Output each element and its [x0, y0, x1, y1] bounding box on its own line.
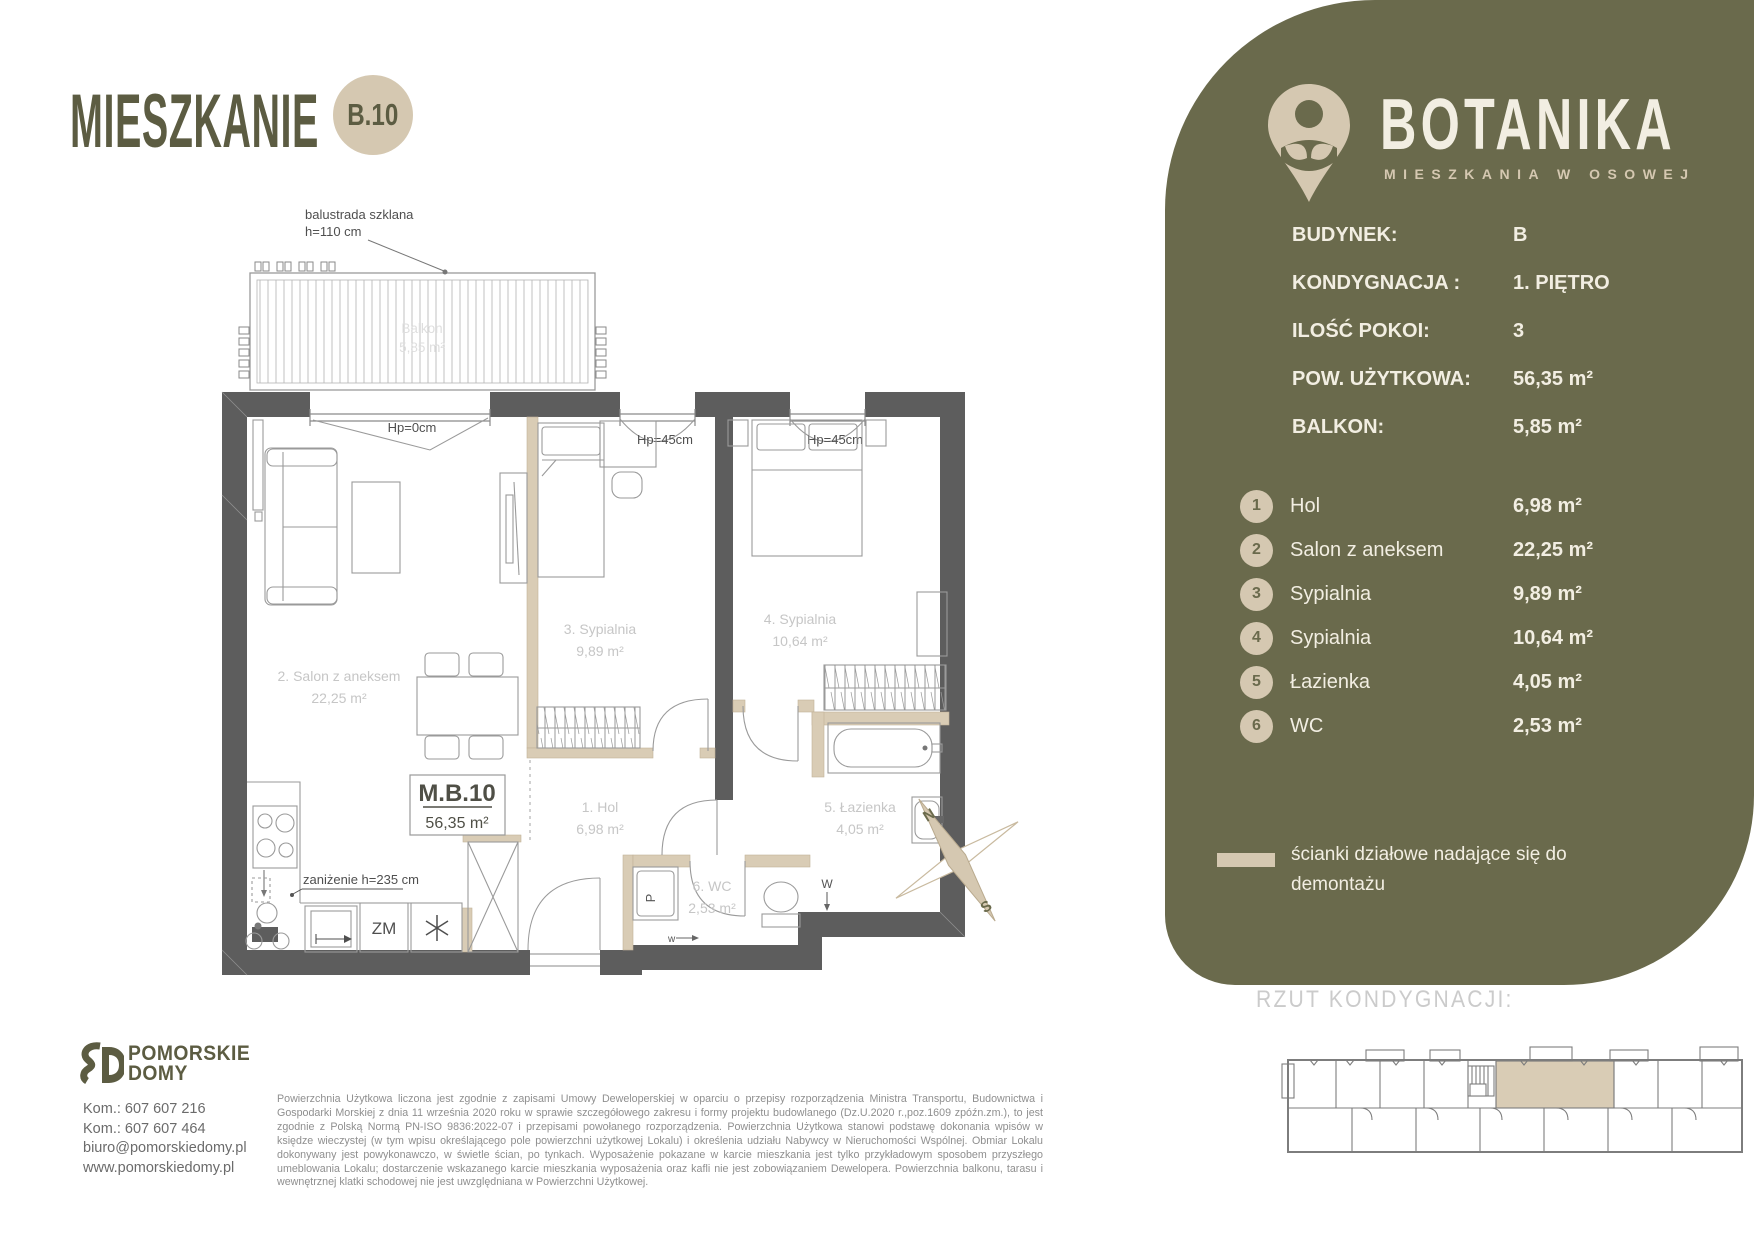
spec-label: ILOŚĆ POKOI:	[1292, 320, 1430, 343]
spec-label: BALKON:	[1292, 416, 1384, 439]
sill-height-label: Hp=0cm	[388, 420, 437, 435]
room-name: WC	[1290, 715, 1323, 738]
list-item: 2 Salon z aneksem 22,25 m²	[1240, 528, 1700, 572]
room-area-label: 2,53 m²	[688, 900, 736, 916]
room-number-badge: 6	[1240, 710, 1273, 743]
single-bed	[538, 423, 604, 577]
pillow	[542, 427, 600, 455]
hall: M.B.10 56,35 m² 1. Hol 6,98 m²	[410, 775, 624, 977]
room-number-badge: 4	[1240, 622, 1273, 655]
brand-tagline: MIESZKANIA W OSOWEJ	[1384, 166, 1696, 182]
spec-value: 1. PIĘTRO	[1513, 272, 1610, 295]
room-number-badge: 3	[1240, 578, 1273, 611]
room-area: 2,53 m²	[1513, 715, 1582, 738]
room-label-bedroom4: 4. Sypialnia	[764, 611, 837, 627]
bedroom-4	[728, 420, 947, 761]
spec-row-floor: KONDYGNACJA : 1. PIĘTRO	[1292, 259, 1712, 307]
toilet-bowl	[764, 882, 798, 912]
phone-line: Kom.: 607 607 216	[83, 1100, 247, 1120]
email-line: biuro@pomorskiedomy.pl	[83, 1139, 247, 1159]
room-number-badge: 2	[1240, 534, 1273, 567]
dishwasher-label: ZM	[372, 919, 397, 938]
vent-label: W	[821, 877, 833, 891]
spec-row-balcony: BALKON: 5,85 m²	[1292, 403, 1712, 451]
map-pin-leaf-icon	[1268, 84, 1350, 202]
highlighted-unit	[1496, 1061, 1614, 1108]
leader-line	[368, 240, 444, 271]
room-label-wc: 6. WC	[693, 878, 732, 894]
coffee-table	[352, 482, 400, 573]
list-item: 6 WC 2,53 m²	[1240, 704, 1700, 748]
floor-overview-plan	[1280, 1040, 1750, 1167]
radiator	[253, 420, 263, 510]
room-name: Sypialnia	[1290, 627, 1371, 650]
sink	[257, 903, 277, 923]
balcony: Balkon 5,85 m² balustrada szklana h=110 …	[239, 207, 606, 390]
dining-table	[417, 677, 518, 735]
unit-area: 56,35 m²	[425, 815, 489, 832]
vent-label: w	[667, 934, 676, 945]
spec-value: 5,85 m²	[1513, 416, 1582, 439]
developer-name: POMORSKIE DOMY	[128, 1044, 250, 1084]
washer-label: P	[643, 894, 658, 903]
room-label-salon: 2. Salon z aneksem	[278, 668, 401, 684]
room-name: Sypialnia	[1290, 583, 1371, 606]
room-name: Salon z aneksem	[1290, 539, 1443, 562]
spec-row-building: BUDYNEK: B	[1292, 211, 1712, 259]
list-item: 3 Sypialnia 9,89 m²	[1240, 572, 1700, 616]
website-line: www.pomorskiedomy.pl	[83, 1159, 247, 1179]
list-item: 4 Sypialnia 10,64 m²	[1240, 616, 1700, 660]
developer-logo-icon	[78, 1042, 124, 1088]
room-area: 10,64 m²	[1513, 627, 1593, 650]
beige-wall-swatch	[1217, 853, 1275, 867]
developer-name-line2: DOMY	[128, 1064, 250, 1084]
nightstand	[866, 420, 886, 446]
spec-row-rooms: ILOŚĆ POKOI: 3	[1292, 307, 1712, 355]
unit-code: M.B.10	[418, 780, 495, 807]
chair	[469, 736, 503, 759]
room-area-label: 10,64 m²	[772, 633, 828, 649]
spec-row-usable-area: POW. UŻYTKOWA: 56,35 m²	[1292, 355, 1712, 403]
room-area: 22,25 m²	[1513, 539, 1593, 562]
room-area-label: 22,25 m²	[311, 690, 367, 706]
demountable-walls-legend: ścianki działowe nadające się do demonta…	[1217, 840, 1636, 900]
room-area-label: 6,98 m²	[576, 821, 624, 837]
spec-label: KONDYGNACJA :	[1292, 272, 1460, 295]
chair	[425, 653, 459, 676]
phone-line: Kom.: 607 607 464	[83, 1120, 247, 1140]
brand-name: BOTANIKA	[1380, 84, 1676, 166]
sill-height-label: Hp=45cm	[807, 432, 863, 447]
floor-overview-heading: RZUT KONDYGNACJI:	[1256, 986, 1514, 1014]
room-area: 6,98 m²	[1513, 495, 1582, 518]
toilet-tank	[762, 914, 800, 927]
room-name: Łazienka	[1290, 671, 1370, 694]
list-item: 1 Hol 6,98 m²	[1240, 484, 1700, 528]
balcony-area-label: 5,85 m²	[399, 340, 445, 355]
door-arc	[653, 699, 708, 751]
room-area-label: 9,89 m²	[576, 643, 624, 659]
leader-line	[293, 889, 403, 894]
spec-label: POW. UŻYTKOWA:	[1292, 368, 1471, 391]
apartment-floor-plan: Balkon 5,85 m² balustrada szklana h=110 …	[180, 170, 1040, 990]
list-item: 5 Łazienka 4,05 m²	[1240, 660, 1700, 704]
room-number-badge: 1	[1240, 490, 1273, 523]
room-number-badge: 5	[1240, 666, 1273, 699]
oven	[305, 906, 357, 952]
spec-label: BUDYNEK:	[1292, 224, 1398, 247]
fridge-asterisk-icon	[426, 915, 448, 941]
lowered-ceiling-label: zaniżenie h=235 cm	[303, 872, 419, 887]
legal-disclaimer: Powierzchnia Użytkowa liczona jest zgodn…	[277, 1093, 1043, 1190]
room-label-bathroom: 5. Łazienka	[824, 799, 896, 815]
page-title: MIESZKANIE	[70, 78, 319, 165]
room-label-hall: 1. Hol	[582, 799, 619, 815]
washing-machine	[633, 867, 678, 920]
chair	[425, 736, 459, 759]
room-area: 9,89 m²	[1513, 583, 1582, 606]
entrance-door-arc	[528, 878, 600, 950]
room-list: 1 Hol 6,98 m² 2 Salon z aneksem 22,25 m²…	[1240, 484, 1700, 748]
door-arc	[662, 800, 717, 855]
room-area-label: 4,05 m²	[836, 821, 884, 837]
balustrade-height-label: h=110 cm	[305, 224, 362, 239]
room-label-bedroom3: 3. Sypialnia	[564, 621, 637, 637]
chair	[469, 653, 503, 676]
apartment-card-page: MIESZKANIE B.10 BOTANIKA MIESZKANIA W OS…	[0, 0, 1754, 1241]
balcony-label: Balkon	[401, 321, 442, 336]
bedroom-3	[537, 421, 708, 751]
unit-number-badge: B.10	[333, 75, 413, 155]
balustrade-label: balustrada szklana	[305, 207, 414, 222]
contact-block: Kom.: 607 607 216 Kom.: 607 607 464 biur…	[83, 1100, 247, 1179]
room-name: Hol	[1290, 495, 1320, 518]
spec-value: 56,35 m²	[1513, 368, 1593, 391]
sill-height-label: Hp=45cm	[637, 432, 693, 447]
spec-value: B	[1513, 224, 1527, 247]
chair	[612, 472, 642, 498]
compass-south-label: S	[978, 897, 996, 917]
spec-value: 3	[1513, 320, 1524, 343]
developer-name-line1: POMORSKIE	[128, 1044, 250, 1064]
unit-number: B.10	[347, 97, 398, 133]
room-area: 4,05 m²	[1513, 671, 1582, 694]
door-arc	[743, 706, 798, 761]
legend-text: ścianki działowe nadające się do demonta…	[1291, 840, 1636, 900]
spec-table: BUDYNEK: B KONDYGNACJA : 1. PIĘTRO ILOŚĆ…	[1292, 211, 1712, 451]
